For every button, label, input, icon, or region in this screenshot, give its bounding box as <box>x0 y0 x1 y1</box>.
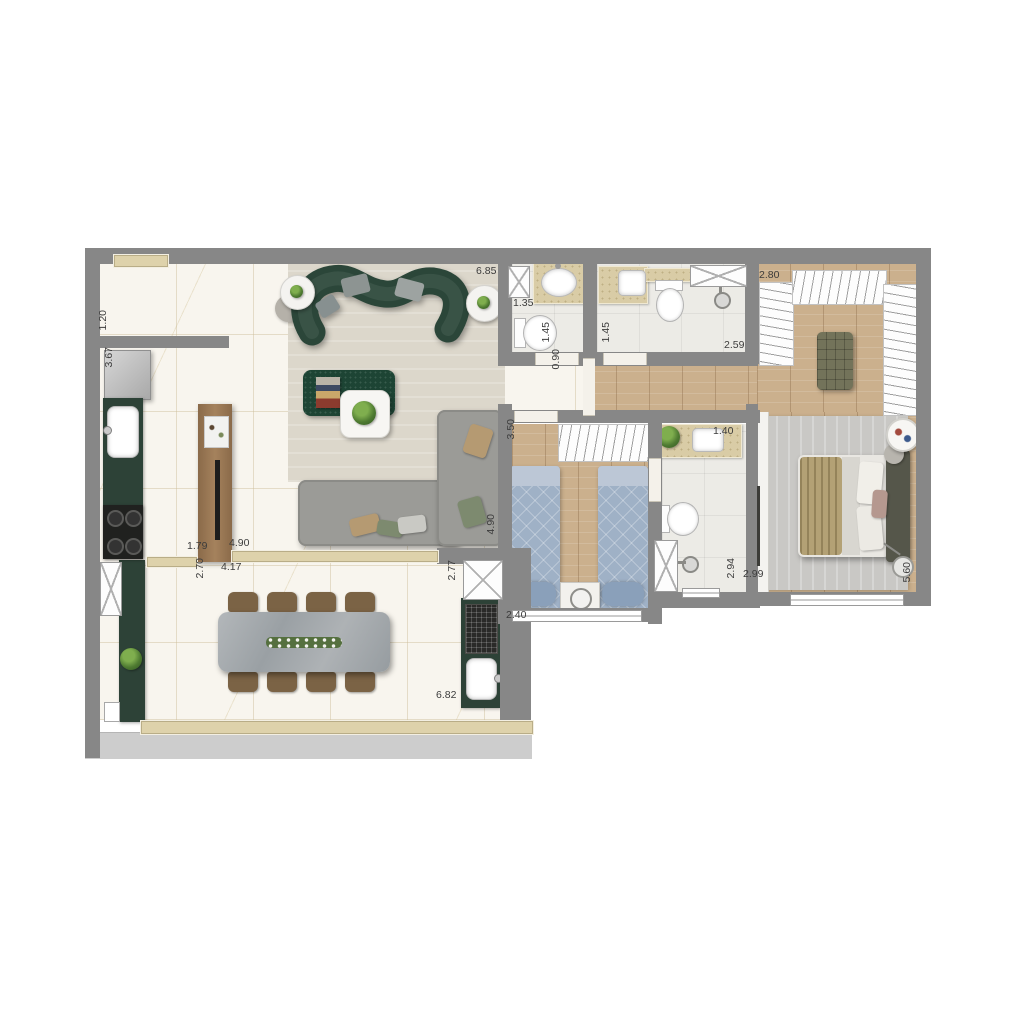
dimension-label: 4.90 <box>229 538 249 549</box>
kitchen-plant <box>120 648 142 670</box>
wall-terrace-east <box>500 548 531 734</box>
master-wardrobe-handle <box>757 486 760 566</box>
double-bed-throw <box>800 457 842 555</box>
coffee-table-plant <box>352 401 376 425</box>
service-window <box>113 254 169 268</box>
dimension-label: 1.79 <box>187 541 207 552</box>
cooktop-burner <box>125 510 142 527</box>
living-terrace-sill <box>231 550 439 563</box>
wall-right <box>916 248 931 606</box>
pantry-cabinet <box>119 560 145 722</box>
double-bed-sheet <box>842 457 860 555</box>
terrace-railing-window <box>140 720 534 735</box>
coffee-table-books <box>316 377 340 408</box>
shower-tray <box>690 265 747 287</box>
dimension-label: 2.80 <box>759 270 779 281</box>
shaft-powder-room <box>508 266 530 298</box>
closet-ottoman <box>817 332 853 390</box>
dining-chair <box>228 592 258 612</box>
dimension-label: 1.35 <box>513 298 533 309</box>
dimension-label: 2.59 <box>724 340 744 351</box>
single-bed-right-pillow <box>602 582 644 606</box>
wall-suite-bath-north <box>648 410 760 423</box>
dimension-label: 4.17 <box>221 562 241 573</box>
closet-rack-top <box>792 270 887 305</box>
sofa-pillow-gray <box>397 514 427 534</box>
dimension-label: 1.45 <box>541 322 552 342</box>
cooktop-burner <box>107 510 124 527</box>
l-sofa-seat <box>298 480 460 546</box>
television <box>215 460 220 540</box>
master-accent-pillow <box>871 490 888 519</box>
shower-head <box>714 292 731 309</box>
closet-rack-left <box>759 282 794 366</box>
single-bed-left-fold <box>510 466 560 486</box>
dimension-label: 5.60 <box>902 562 913 582</box>
dining-chair <box>345 592 375 612</box>
kitchen-sink <box>107 406 139 458</box>
apartment-floor-plan: 1.203.676.851.351.451.450.902.592.803.50… <box>0 0 1024 1024</box>
shaft-kitchen <box>100 562 122 616</box>
balcony-slab <box>85 732 532 759</box>
dimension-label: 1.40 <box>713 426 733 437</box>
dining-chair <box>345 672 375 692</box>
master-bedroom-window <box>790 594 904 606</box>
dimension-label: 4.90 <box>486 514 497 534</box>
twin-wardrobe-hangers <box>558 424 650 462</box>
dimension-label: 2.40 <box>506 610 526 621</box>
dimension-label: 6.82 <box>436 690 456 701</box>
dimension-label: 1.45 <box>601 322 612 342</box>
dimension-label: 1.20 <box>98 310 109 330</box>
shaft-suite-bathroom <box>654 540 678 592</box>
suite-shower-sill <box>682 588 720 598</box>
single-bed-right-fold <box>598 466 648 486</box>
twin-table-lamp <box>570 588 592 610</box>
cooktop-burner <box>107 538 124 555</box>
suite-shower-arm <box>678 561 686 564</box>
cooktop-burner <box>125 538 142 555</box>
dimension-label: 3.67 <box>104 347 115 367</box>
kitchen-faucet <box>103 426 112 435</box>
charcoal-grill <box>465 604 498 654</box>
shaft-terrace-corner <box>463 560 503 600</box>
dimension-label: 2.94 <box>726 558 737 578</box>
dining-chair <box>267 672 297 692</box>
tv-panel-shelf <box>204 416 229 448</box>
dimension-label: 2.70 <box>195 558 206 578</box>
dining-chair <box>306 592 336 612</box>
terrace-sink <box>466 658 497 700</box>
curved-sofa <box>290 258 480 353</box>
master-tray-table <box>886 418 920 452</box>
hall-threshold <box>583 358 595 416</box>
dining-chair <box>267 592 297 612</box>
wall-service-nook <box>99 336 229 348</box>
suite-bathroom-door <box>649 458 661 502</box>
floor-plan-image: 1.203.676.851.351.451.450.902.592.803.50… <box>0 0 1024 1024</box>
closet-rack-right <box>883 284 918 416</box>
dimension-label: 3.50 <box>506 419 517 439</box>
dining-chair <box>306 672 336 692</box>
dining-chair <box>228 672 258 692</box>
wall-powder-bath <box>583 264 597 364</box>
side-table-plant-right <box>477 296 490 309</box>
dimension-label: 2.99 <box>743 569 763 580</box>
twin-bedroom-door <box>514 411 558 422</box>
powder-washbasin <box>541 268 577 297</box>
wall-bath-closet <box>745 264 759 364</box>
bath-washbasin <box>618 270 646 296</box>
cabinet-niche <box>104 702 120 722</box>
suite-toilet-bowl <box>667 502 699 536</box>
bath-toilet-bowl <box>656 288 684 322</box>
wall-top <box>85 248 931 264</box>
dimension-label: 2.77 <box>447 560 458 580</box>
kitchen-dining-sill <box>146 556 198 568</box>
suite-shower-head <box>682 556 699 573</box>
side-table-plant-left <box>290 285 303 298</box>
bathroom-door <box>603 353 647 365</box>
dimension-label: 6.85 <box>476 266 496 277</box>
flower-centerpiece <box>266 637 342 648</box>
twin-bedroom-window <box>512 610 642 622</box>
dimension-label: 0.90 <box>551 349 562 369</box>
